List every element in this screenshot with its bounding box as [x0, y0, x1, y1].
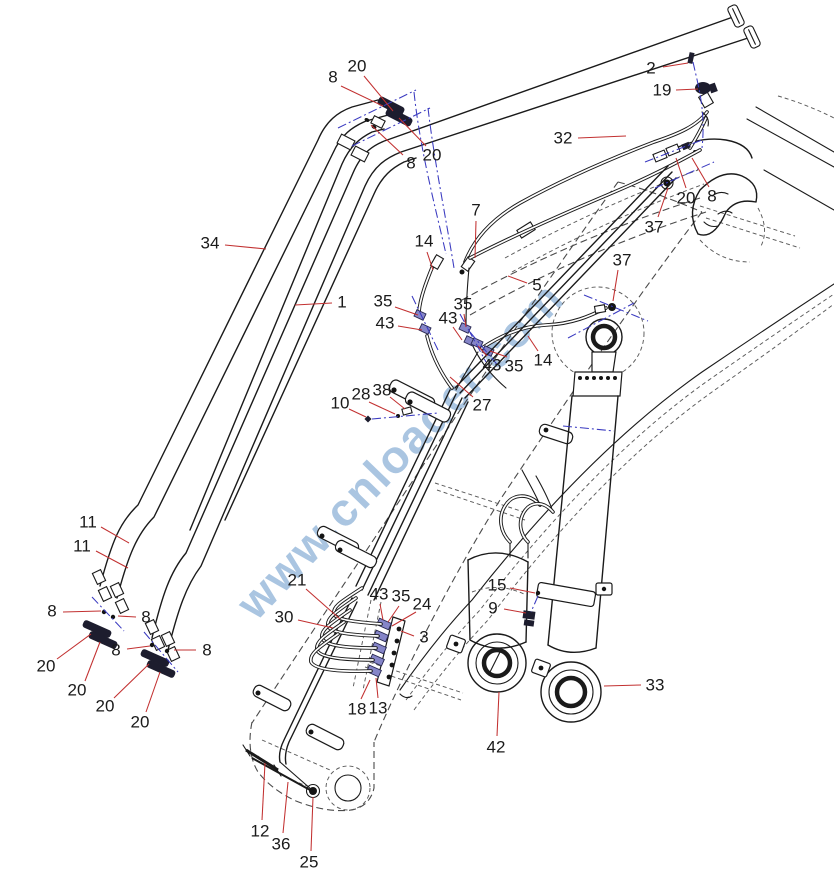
- leader-line-5: [508, 276, 527, 283]
- leader-line-8: [118, 616, 136, 617]
- part-label-14: 14: [534, 351, 553, 370]
- leader-line-43: [398, 326, 422, 330]
- boom-piping-exploded-diagram: www.cnloader.com: [0, 0, 834, 870]
- part-label-30: 30: [275, 608, 294, 627]
- leader-line-3: [401, 631, 414, 636]
- leader-line-18: [361, 680, 370, 699]
- part-label-43: 43: [370, 585, 389, 604]
- part-label-9: 9: [488, 599, 497, 618]
- leader-line-35: [395, 307, 418, 315]
- part-label-5: 5: [532, 276, 541, 295]
- leader-line-25: [311, 797, 313, 851]
- part-label-18: 18: [348, 700, 367, 719]
- part-label-20: 20: [68, 681, 87, 700]
- part-label-24: 24: [413, 595, 432, 614]
- leader-line-33: [604, 685, 641, 686]
- leader-line-37: [613, 270, 618, 301]
- leader-line-21: [306, 589, 340, 619]
- part-label-43: 43: [376, 314, 395, 333]
- hose-bundle: [82, 4, 762, 679]
- leader-line-7: [475, 221, 476, 258]
- part-label-20: 20: [348, 57, 367, 76]
- leader-line-38: [390, 397, 405, 409]
- leader-line-14: [427, 252, 433, 270]
- part-label-8: 8: [328, 68, 337, 87]
- part-label-25: 25: [300, 853, 319, 870]
- part-label-15: 15: [488, 576, 507, 595]
- part-label-32: 32: [554, 129, 573, 148]
- part-label-11: 11: [79, 513, 97, 532]
- fitting-9: [523, 610, 536, 620]
- part-label-7: 7: [471, 201, 480, 220]
- part-label-37: 37: [645, 218, 664, 237]
- part-label-20: 20: [677, 189, 696, 208]
- leader-line-36: [283, 782, 288, 833]
- part-label-33: 33: [646, 676, 665, 695]
- leader-line-20: [114, 664, 149, 698]
- part-label-20: 20: [423, 146, 442, 165]
- leader-line-8: [341, 86, 383, 106]
- part-label-8: 8: [202, 641, 211, 660]
- leader-line-12: [262, 763, 265, 820]
- leader-line-32: [578, 136, 626, 138]
- leader-line-8: [692, 158, 709, 187]
- leader-line-20: [364, 76, 393, 111]
- nut-28: [396, 414, 400, 418]
- part-label-35: 35: [392, 587, 411, 606]
- leader-line-28: [369, 402, 395, 414]
- rod-cap: [743, 25, 761, 49]
- part-label-35: 35: [505, 357, 524, 376]
- leader-line-20: [57, 634, 91, 659]
- part-label-10: 10: [331, 394, 350, 413]
- part-label-21: 21: [288, 571, 307, 590]
- part-label-1: 1: [337, 293, 346, 312]
- part-label-20: 20: [37, 657, 56, 676]
- part-label-28: 28: [352, 385, 371, 404]
- watermark-text: www.cnloader.com: [225, 271, 574, 629]
- leader-line-8: [63, 611, 101, 612]
- leader-line-20: [399, 118, 426, 146]
- part-label-20: 20: [131, 713, 150, 732]
- part-label-13: 13: [369, 699, 388, 718]
- leader-line-20: [146, 672, 160, 712]
- fitting-19: [695, 82, 711, 94]
- boom-hidden-outline: [250, 96, 834, 811]
- leader-line-34: [225, 245, 266, 249]
- parts-diagram-page: www.cnloader.com: [0, 0, 834, 870]
- part-label-12: 12: [251, 822, 270, 841]
- part-label-20: 20: [96, 697, 115, 716]
- part-label-11: 11: [73, 537, 91, 556]
- part-label-8: 8: [707, 187, 716, 206]
- leader-line-20: [85, 642, 100, 681]
- part-label-35: 35: [374, 292, 393, 311]
- part-label-2: 2: [646, 59, 655, 78]
- part-label-19: 19: [653, 81, 672, 100]
- part-label-8: 8: [406, 154, 415, 173]
- part-label-36: 36: [272, 835, 291, 854]
- part-label-34: 34: [201, 234, 220, 253]
- part-label-37: 37: [613, 251, 632, 270]
- leader-line-9: [504, 609, 526, 613]
- leader-line-11: [96, 551, 128, 568]
- fitting-25: [309, 787, 317, 795]
- leader-line-42: [497, 692, 499, 736]
- part-label-43: 43: [439, 309, 458, 328]
- part-label-8: 8: [47, 602, 56, 621]
- leader-line-10: [349, 409, 366, 417]
- leader-line-19: [676, 89, 698, 90]
- leader-line-8: [127, 646, 150, 649]
- hose-32-group: [460, 52, 718, 274]
- part-label-8: 8: [141, 608, 150, 627]
- part-label-3: 3: [419, 628, 428, 647]
- leader-line-43: [380, 604, 383, 620]
- part-label-42: 42: [487, 738, 506, 757]
- leader-line-20: [676, 158, 686, 188]
- fitting-37-mid: [608, 303, 616, 311]
- part-label-14: 14: [415, 232, 434, 251]
- part-label-8: 8: [111, 641, 120, 660]
- part-label-27: 27: [473, 396, 492, 415]
- rod-cap: [727, 4, 745, 28]
- part-label-43: 43: [483, 356, 502, 375]
- part-label-38: 38: [373, 381, 392, 400]
- bolt-15: [536, 591, 540, 595]
